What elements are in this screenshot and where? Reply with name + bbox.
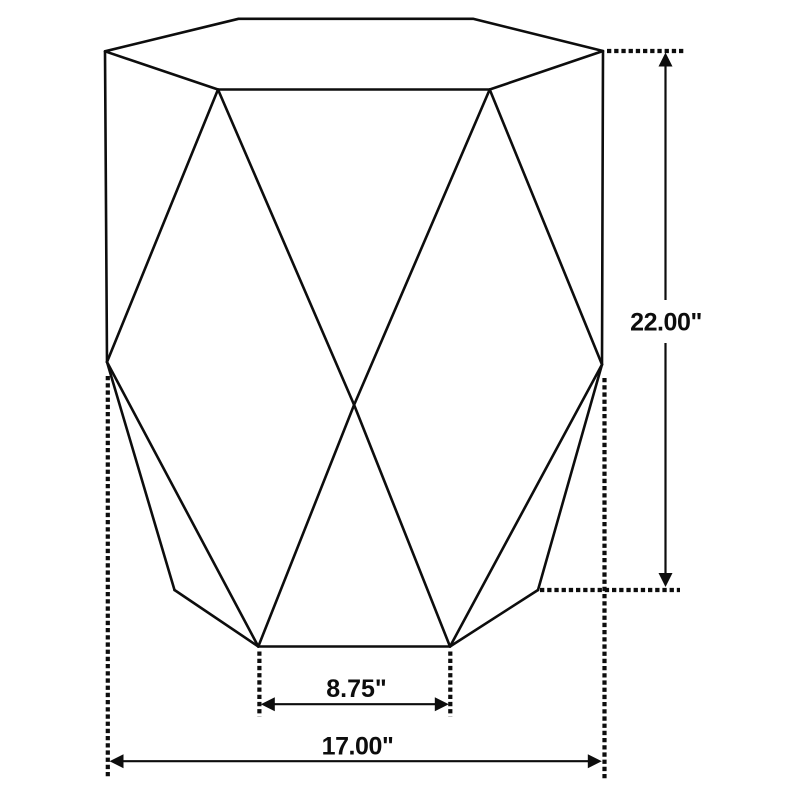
svg-text:17.00": 17.00" (322, 733, 394, 761)
svg-text:8.75": 8.75" (326, 675, 387, 703)
svg-text:22.00": 22.00" (630, 309, 702, 337)
